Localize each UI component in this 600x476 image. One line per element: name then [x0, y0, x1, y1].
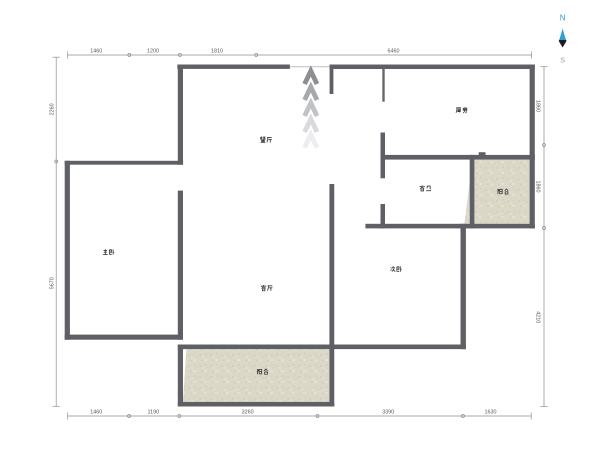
svg-text:1460: 1460	[90, 49, 102, 55]
svg-text:1200: 1200	[147, 49, 159, 55]
svg-text:2260: 2260	[50, 103, 56, 115]
svg-text:N: N	[560, 14, 566, 23]
svg-text:3260: 3260	[242, 410, 254, 416]
svg-text:1190: 1190	[148, 410, 160, 416]
svg-text:1810: 1810	[211, 49, 223, 55]
svg-text:1860: 1860	[534, 100, 540, 112]
svg-text:1860: 1860	[534, 181, 540, 193]
svg-text:6460: 6460	[388, 49, 400, 55]
svg-text:5670: 5670	[50, 277, 56, 289]
svg-text:S: S	[560, 58, 565, 65]
svg-text:1630: 1630	[485, 410, 497, 416]
svg-text:3390: 3390	[382, 410, 394, 416]
svg-text:1460: 1460	[90, 410, 102, 416]
svg-text:4210: 4210	[534, 311, 540, 323]
